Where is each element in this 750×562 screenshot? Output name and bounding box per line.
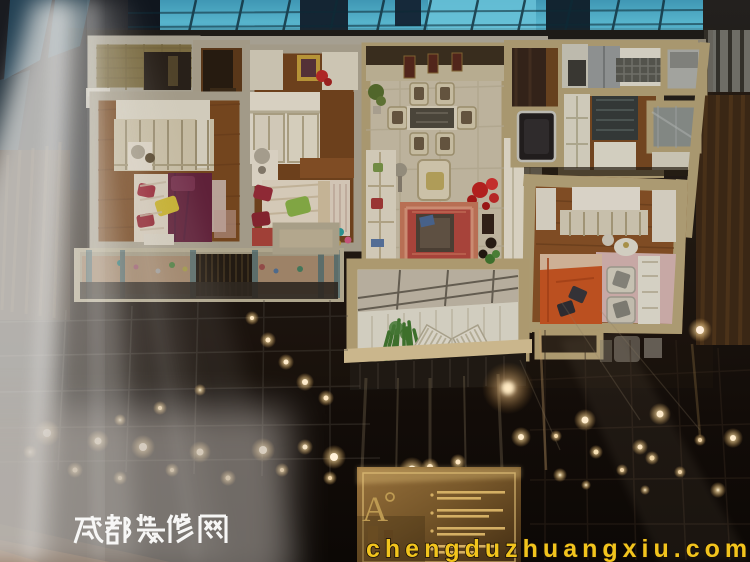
svg-text:chengduzhuangxiu.com: chengduzhuangxiu.com [366,535,750,562]
svg-text:A: A [362,489,388,529]
